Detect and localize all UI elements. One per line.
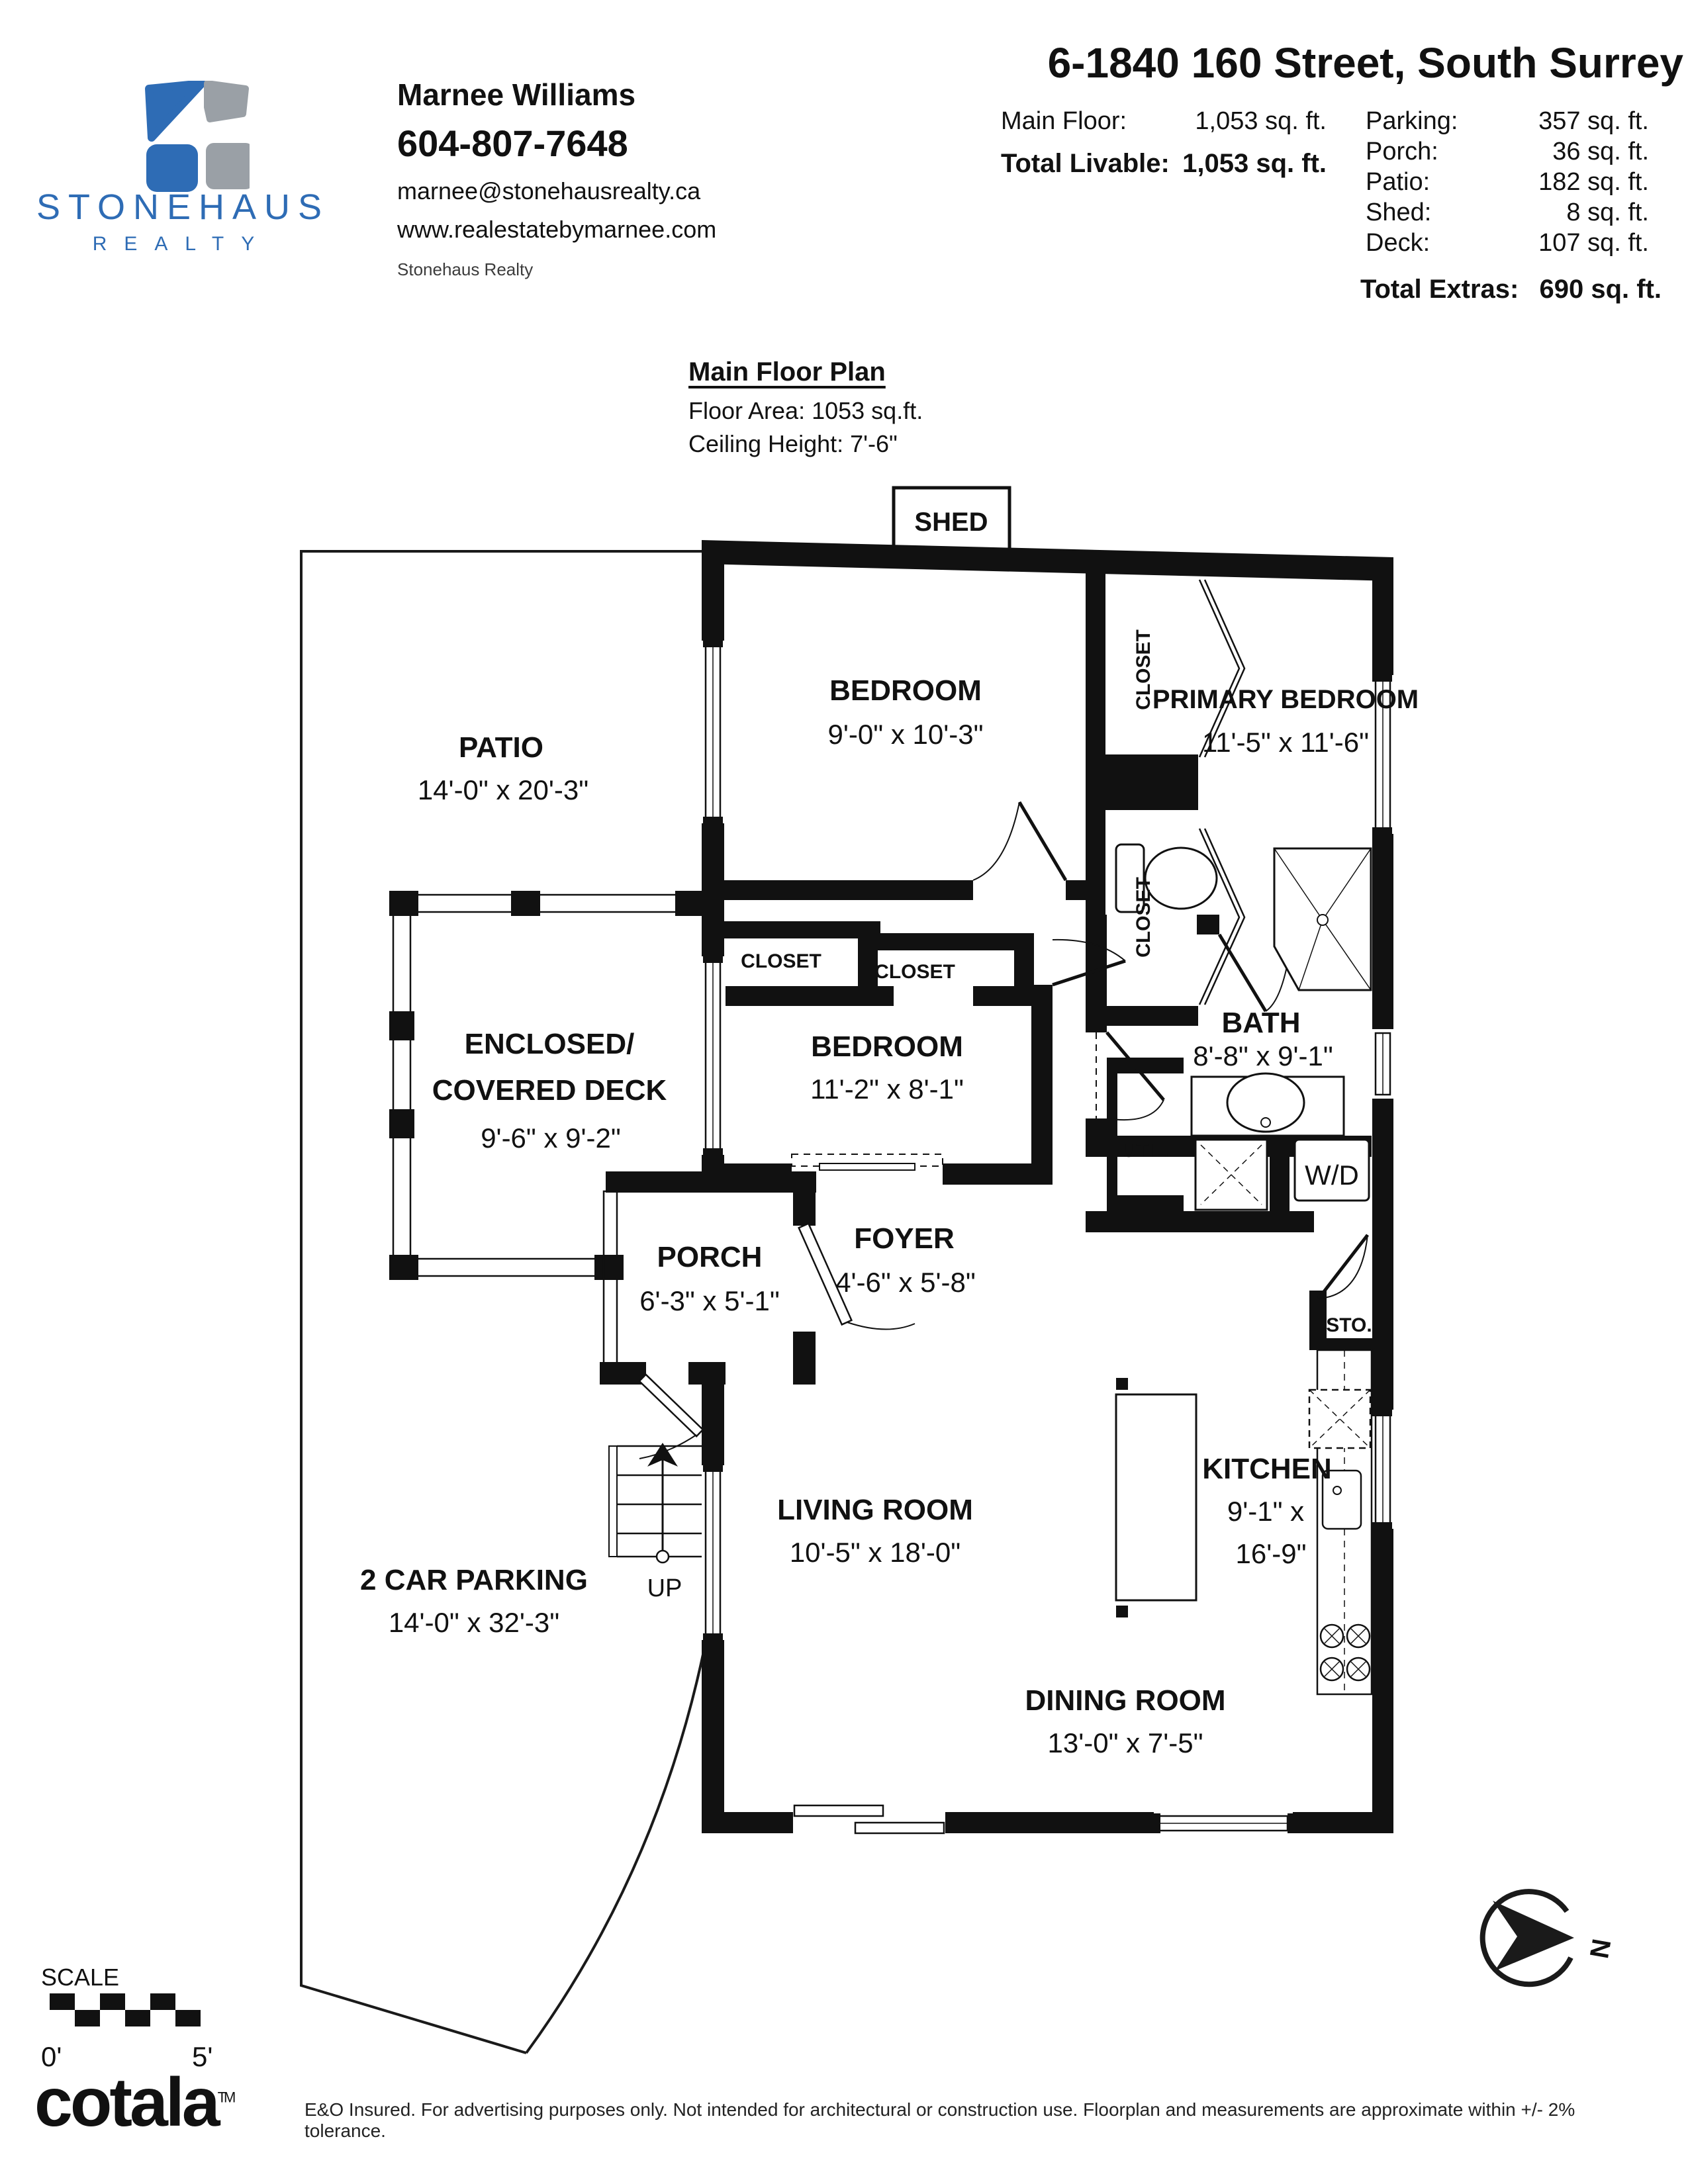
- bedroom2-label: BEDROOM: [811, 1030, 963, 1063]
- wall-util-top: [1107, 1058, 1184, 1073]
- floor-plan-drawing: SHED PATIO 14'-0" x 20'-3" BEDROOM 9'-0"…: [0, 0, 1688, 2184]
- wall-closetB-right: [1014, 933, 1034, 986]
- bedroom1-dims: 9'-0" x 10'-3": [828, 719, 984, 750]
- wall-top: [702, 540, 1393, 581]
- dining-label: DINING ROOM: [1025, 1684, 1225, 1717]
- wall-laundry-bottom: [1086, 1211, 1314, 1232]
- deck-wall-left: [393, 895, 410, 1276]
- wd-label: W/D: [1305, 1160, 1359, 1191]
- slider-panel-outer: [794, 1805, 883, 1816]
- north-arrow-icon: [1493, 1901, 1574, 1971]
- bedroom1-door-leaf: [1019, 802, 1066, 880]
- closetA-label: CLOSET: [741, 950, 821, 972]
- slider-panel-inner: [855, 1823, 944, 1833]
- porch-wall-top: [606, 1171, 816, 1193]
- dining-dims: 13'-0" x 7'-5": [1048, 1727, 1203, 1758]
- sto-label: STO.: [1326, 1314, 1372, 1336]
- deck-wall-top: [393, 895, 702, 912]
- scale-label: SCALE: [41, 1964, 119, 1991]
- wall-laundry-divider: [1270, 1136, 1289, 1211]
- shed-label: SHED: [914, 508, 988, 537]
- shower-drain: [1317, 915, 1328, 925]
- wall-util-bottom: [1107, 1195, 1184, 1211]
- scale-bar: SCALE 0' 5': [41, 1964, 212, 2072]
- closetB-label: CLOSET: [874, 961, 955, 983]
- deck-wall-bottom: [393, 1259, 622, 1276]
- bedroom2-heater: [820, 1163, 915, 1170]
- wall-bedroom2-top-left: [724, 986, 894, 1006]
- deck-label-line2: COVERED DECK: [432, 1074, 667, 1107]
- porch-walls: [600, 1171, 816, 1385]
- util-label: UTIL.: [1122, 1140, 1172, 1161]
- living-label: LIVING ROOM: [777, 1494, 973, 1526]
- bath-label: BATH: [1222, 1007, 1301, 1039]
- scale-bar-segments: [50, 1993, 201, 2026]
- floorplan-flyer-page: STONEHAUS REALTY Marnee Williams 604-807…: [0, 0, 1688, 2184]
- wall-bedroom2-right: [1031, 985, 1053, 1185]
- island-post-top: [1116, 1378, 1128, 1390]
- cotala-tm: TM: [218, 2089, 234, 2105]
- shower: [1274, 848, 1371, 990]
- wall-closet-separator: [1105, 754, 1198, 810]
- north-arrow: N: [1483, 1891, 1616, 1984]
- disclaimer-text: E&O Insured. For advertising purposes on…: [305, 2099, 1655, 2142]
- bedroom1-door-swing: [973, 802, 1019, 880]
- deck-dims: 9'-6" x 9'-2": [481, 1122, 621, 1154]
- north-label: N: [1584, 1936, 1616, 1960]
- driveway-curve-line: [526, 1618, 710, 2053]
- cotala-logo: cotalaTM: [34, 2064, 233, 2142]
- parking-dims: 14'-0" x 32'-3": [389, 1607, 559, 1638]
- sink-drain: [1261, 1118, 1270, 1127]
- porch-dims: 6'-3" x 5'-1": [639, 1285, 780, 1316]
- stair-railing: [609, 1446, 617, 1557]
- foyer-wall-upper: [793, 1193, 816, 1226]
- wall-bedroom2-bottom-right: [943, 1163, 1053, 1185]
- kitchen-label: KITCHEN: [1202, 1453, 1332, 1485]
- living-dims: 10'-5" x 18'-0": [790, 1537, 961, 1568]
- wall-bedroom1-bottom: [724, 880, 973, 900]
- parking-label: 2 CAR PARKING: [360, 1564, 588, 1596]
- stairs: [609, 1443, 702, 1563]
- kitchen-dims-line2: 16'-9": [1236, 1538, 1307, 1569]
- deck-label-line1: ENCLOSED/: [465, 1028, 635, 1060]
- wall-closetB-top: [878, 933, 1034, 950]
- primary-label: PRIMARY BEDROOM: [1152, 685, 1419, 714]
- patio-label: PATIO: [459, 731, 543, 764]
- stair-newel: [657, 1551, 669, 1563]
- porch-wall-bottom-right: [688, 1362, 726, 1385]
- up-label: UP: [647, 1574, 682, 1602]
- wall-primary-bottom-left: [1197, 915, 1219, 934]
- foyer-label: FOYER: [854, 1222, 955, 1255]
- bath-dims: 8'-8" x 9'-1": [1193, 1040, 1333, 1071]
- patio-dims: 14'-0" x 20'-3": [418, 774, 588, 805]
- wall-sto-bottom: [1309, 1338, 1382, 1350]
- bedroom2-dims: 11'-2" x 8'-1": [810, 1073, 964, 1105]
- kitchen-dims-line1: 9'-1" x: [1227, 1496, 1304, 1527]
- foyer-wall-lower: [793, 1332, 816, 1385]
- toilet-bowl: [1145, 848, 1217, 909]
- foyer-dims: 4'-6" x 5'-8": [835, 1267, 976, 1298]
- front-door-swing: [847, 1322, 915, 1330]
- kitchen-island: [1116, 1394, 1196, 1600]
- cotala-logo-text: cotala: [34, 2064, 218, 2141]
- wall-util-left: [1107, 1058, 1117, 1211]
- closet2-label: CLOSET: [1133, 877, 1154, 958]
- island-post-bottom: [1116, 1606, 1128, 1617]
- bedroom1-label: BEDROOM: [829, 674, 982, 707]
- primary-dims: 11'-5" x 11'-6": [1202, 727, 1369, 758]
- wall-bedroom1-bottom-stub: [1066, 880, 1088, 900]
- closet1-label: CLOSET: [1133, 629, 1154, 710]
- wall-closetA-top: [724, 921, 880, 938]
- porch-label: PORCH: [657, 1241, 763, 1273]
- kitchen-faucet: [1333, 1486, 1341, 1494]
